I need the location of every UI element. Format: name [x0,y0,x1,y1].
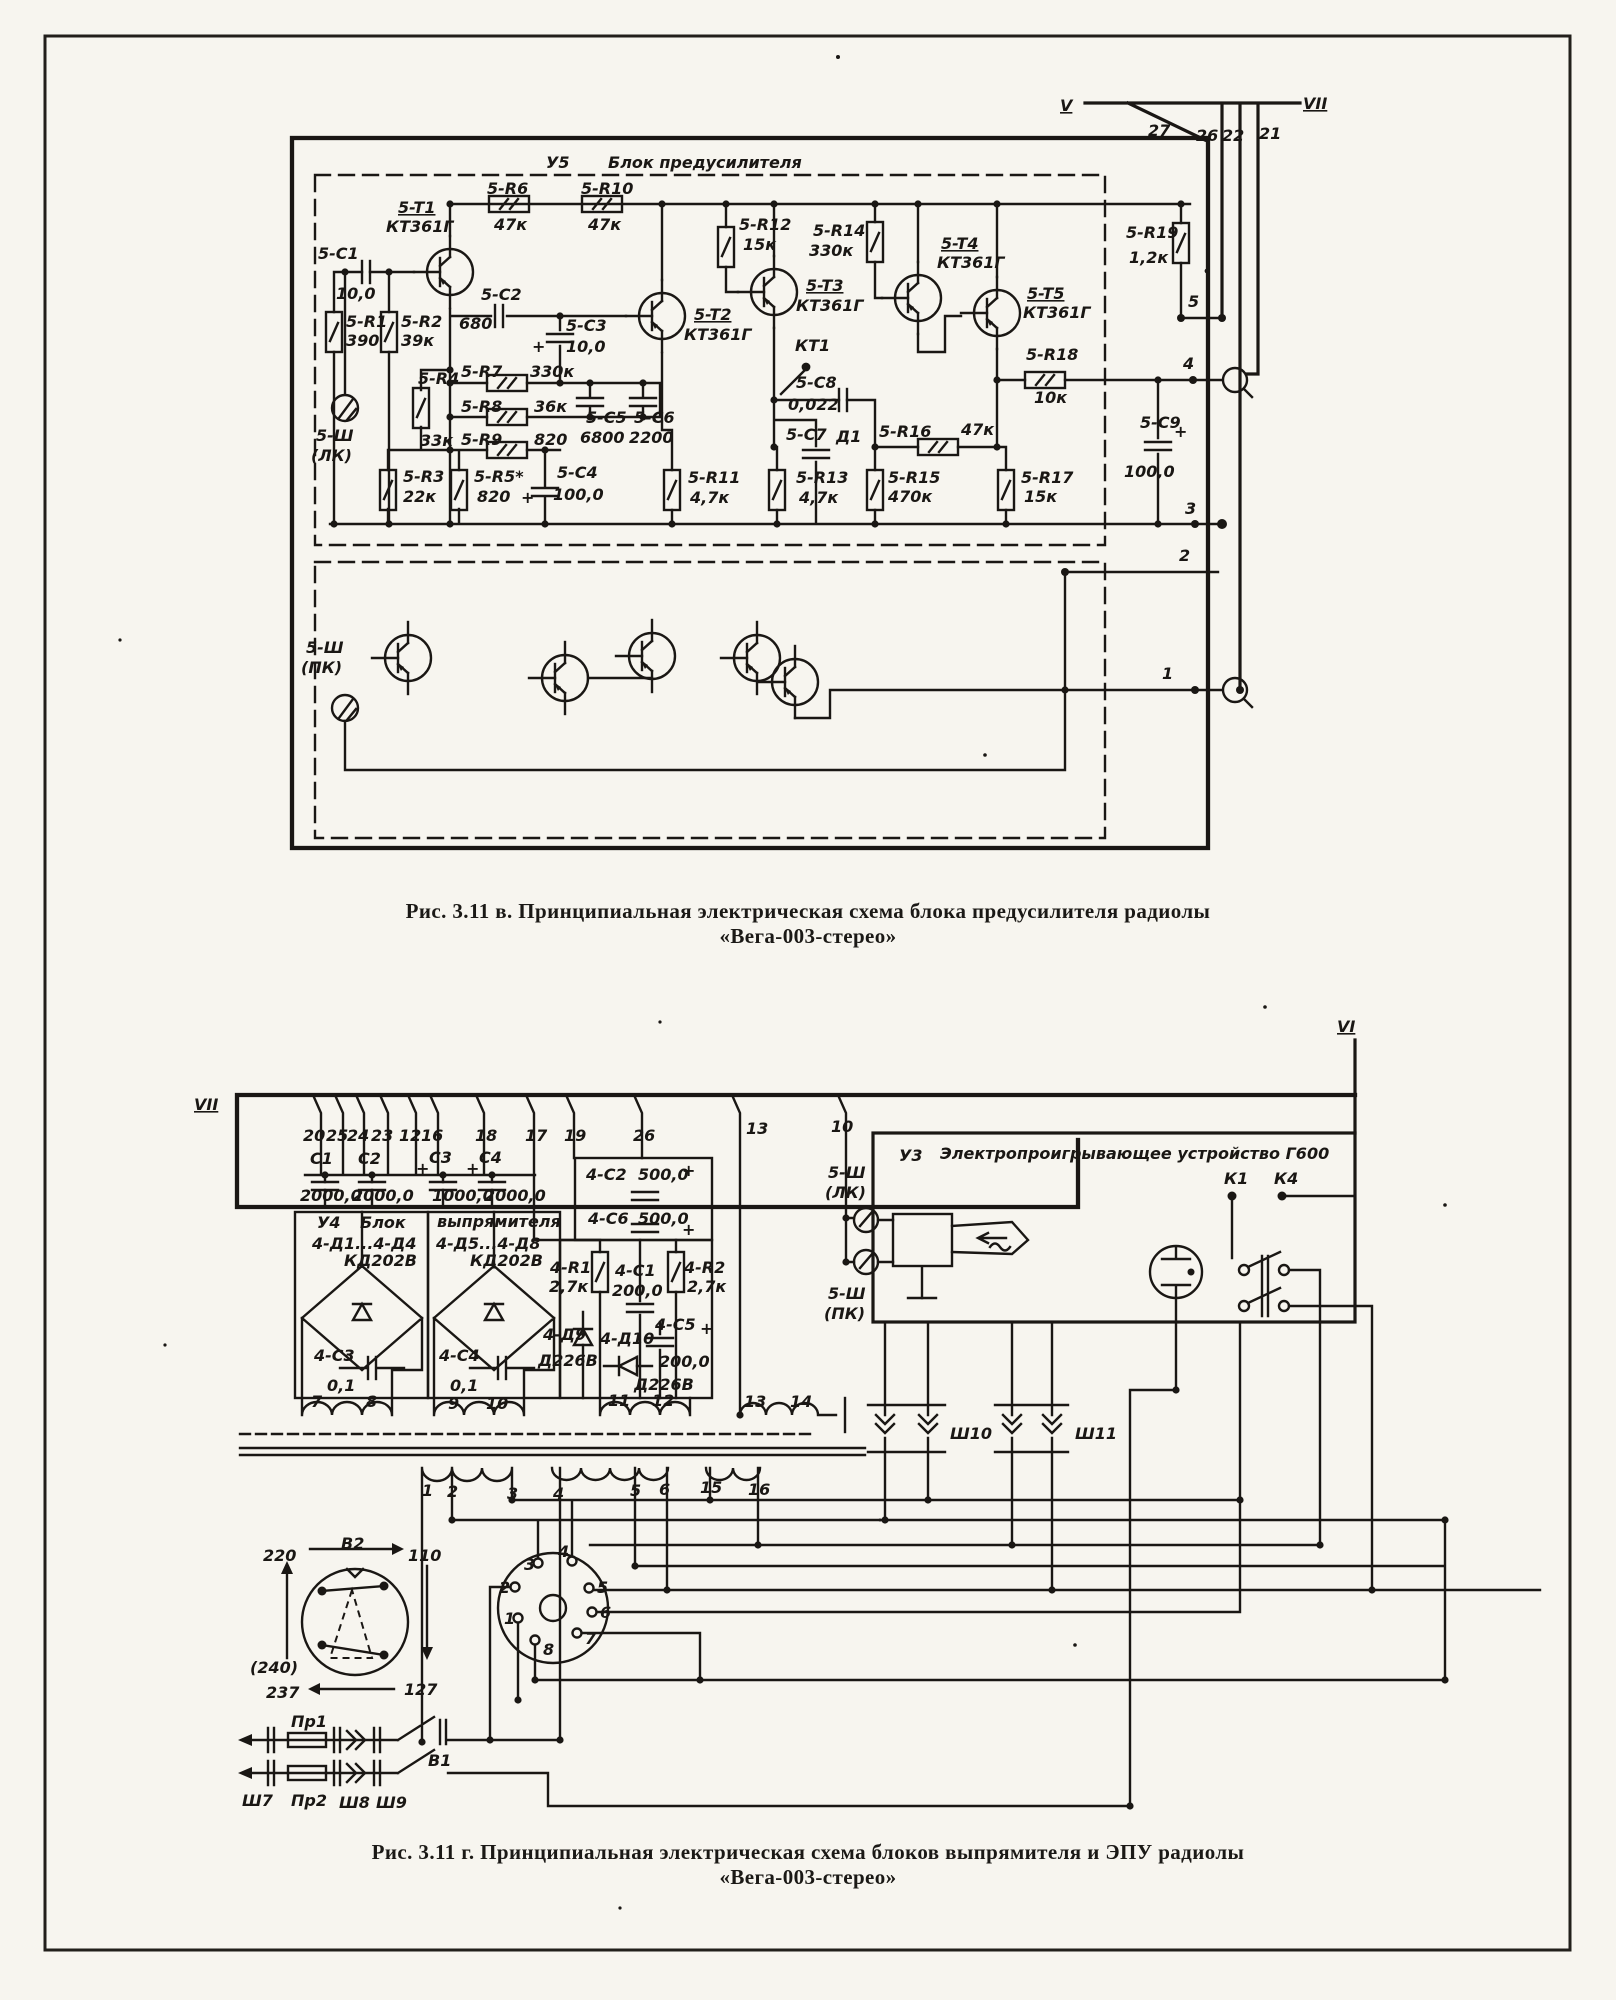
schematic-label: 15к [743,235,777,254]
schematic-label: 2,7к [687,1277,727,1296]
schematic-label: С1 [310,1149,333,1168]
schematic-label: 5-R10 [581,179,633,198]
schematic-label: 5-Ш [306,638,344,657]
schematic-label: 16 [421,1126,443,1145]
schematic-label: 5-T5 [1027,284,1064,303]
schematic-label: 17 [525,1126,548,1145]
schematic-label: 5-R17 [1021,468,1074,487]
schematic-label: 5-R11 [688,468,740,487]
schematic-label: 237 [266,1683,300,1702]
schematic-label: 1,2к [1129,248,1169,267]
schematic-label: + [466,1159,479,1178]
figure-caption-g-line2: «Вега-003-стерео» [0,1865,1616,1890]
schematic-label: 820 [477,487,510,506]
schematic-label: 5-R6 [487,179,528,198]
schematic-label: 16 [748,1480,770,1499]
schematic-label: 4-Д10 [599,1329,654,1348]
schematic-label: 2,7к [549,1277,589,1296]
schematic-label: 20 [303,1126,325,1145]
schematic-label: 5-Ш [828,1163,866,1182]
schematic-label: 11 [608,1391,630,1410]
schematic-label: VII [1303,94,1327,113]
schematic-label: 0,1 [450,1376,478,1395]
schematic-label: Электропроигрывающее устройство Г600 [940,1144,1329,1163]
schematic-label: 18 [475,1126,497,1145]
schematic-label: КТ361Г [1023,303,1091,322]
schematic-label: 5-C3 [566,316,607,335]
schematics-canvas: У5Блок предусилителя5-T1КТ361Г5-R647к5-R… [0,0,1616,2000]
schematic-label: 1 [1162,664,1173,683]
schematic-label: 4 [557,1542,569,1561]
schematic-label: 5-R8 [461,397,502,416]
schematic-label: С2 [358,1149,381,1168]
schematic-label: У5 [546,153,569,172]
schematic-label: 5-R1 [346,312,387,331]
schematic-label: 110 [408,1546,441,1565]
figure-caption-v-line1: Рис. 3.11 в. Принципиальная электрическа… [0,899,1616,924]
schematic-label: 23 [371,1126,393,1145]
schematic-label: 2 [1179,546,1190,565]
schematic-label: VI [1337,1017,1355,1036]
schematic-label: 12 [399,1126,421,1145]
schematic-label: КД202В [344,1251,417,1270]
schematic-label: 7 [585,1629,597,1648]
schematic-label: 5-R3 [403,467,444,486]
schematic-label: 22к [403,487,437,506]
schematic-label: 5-C4 [557,463,598,482]
schematic-label: 220 [263,1546,296,1565]
scan-speck [118,55,1446,1910]
schematic-label: 5-Ш [828,1284,866,1303]
schematic-label: 3 [524,1555,535,1574]
schematic-label: 200,0 [659,1352,710,1371]
schematic-label: (ЛК) [311,446,352,465]
schematic-label: 4-R2 [683,1258,725,1277]
schematic-label: К4 [1274,1169,1298,1188]
schematic-label: 330к [809,241,854,260]
schematic-label: 390 [346,331,379,350]
schematic-label: 0,1 [327,1376,355,1395]
schematic-label: 5-R5* [474,467,524,486]
schematic-label: 5 [630,1481,641,1500]
schematic-label: 470к [887,487,933,506]
schematic-label: VII [194,1095,218,1114]
schematic-label: 5-T3 [806,276,843,295]
schematic-label: В1 [428,1751,451,1770]
schematic-label: 10,0 [566,337,605,356]
schematic-label: 4 [552,1484,564,1503]
schematic-label: 4-C3 [313,1346,355,1365]
schematic-label: 47к [587,215,622,234]
schematic-label: Ш9 [376,1793,407,1812]
schematic-label: 0,022 [788,395,839,414]
schematic-label: С4 [479,1148,502,1167]
schematic-label: 12 [652,1391,674,1410]
schematic-label: + [416,1159,429,1178]
figure-caption-v-line2: «Вега-003-стерео» [0,924,1616,949]
schematic-label: 5-R13 [796,468,848,487]
schematic-label: 4-C4 [438,1346,480,1365]
schematic-label: 10 [486,1394,508,1413]
schematic-label: + [682,1161,695,1180]
schematic-label: 100,0 [553,485,604,504]
schematic-label: 5-C8 [796,373,837,392]
schematic-label: 33к [420,431,454,450]
schematic-label: КД202В [470,1251,543,1270]
schematic-label: 24 [347,1126,369,1145]
schematic-label: 3 [507,1484,518,1503]
schematic-label: У3 [899,1146,922,1165]
schematic-label: 4-С5 [654,1315,696,1334]
schematic-label: 5-C2 [481,285,522,304]
schematic-label: 330к [530,362,575,381]
schematic-label: 2 [447,1482,458,1501]
schematic-label: Д1 [835,427,861,446]
schematic-label: 5-Ш [316,426,354,445]
schematic-label: 6 [600,1603,611,1622]
schematic-label: 5-T2 [694,305,731,324]
rectifier-epu-schematic: VIIVI202524231216181719261310С1С2С3С4++2… [194,1017,1540,1812]
schematic-label: 5-C6 [634,408,675,427]
schematic-label: 2000,0 [484,1186,546,1205]
schematic-label: 5-T4 [941,234,978,253]
schematic-label: 7 [311,1392,323,1411]
schematic-label: 5-C1 [318,244,359,263]
schematic-label: 2200 [629,428,674,447]
schematic-label: 36к [534,397,568,416]
schematic-label: 13 [744,1392,766,1411]
schematic-label: 26 [1196,126,1218,145]
schematic-label: 13 [746,1119,768,1138]
schematic-label: 8 [366,1392,377,1411]
figure-caption-g-line1: Рис. 3.11 г. Принципиальная электрическа… [0,1840,1616,1865]
schematic-label: 15к [1024,487,1058,506]
schematic-label: 21 [1259,124,1281,143]
schematic-label: КТ361Г [796,296,864,315]
schematic-label: 27 [1148,121,1171,140]
schematic-label: 5-R7 [461,362,503,381]
schematic-label: 5-R12 [739,215,791,234]
schematic-label: 5-T1 [398,198,435,217]
schematic-label: 10к [1034,388,1068,407]
schematic-label: 14 [790,1392,812,1411]
schematic-label: 820 [534,430,567,449]
schematic-label: КТ361Г [937,253,1005,272]
schematic-label: Ш11 [1075,1424,1117,1443]
schematic-label: V [1060,96,1074,115]
schematic-label: + [700,1319,713,1338]
schematic-label: 9 [448,1394,459,1413]
schematic-label: 26 [633,1126,655,1145]
schematic-label: 10 [831,1117,853,1136]
schematic-label: У4 [317,1213,340,1232]
schematic-label: С3 [429,1148,452,1167]
schematic-label: 2 [499,1578,510,1597]
schematic-label: КТ1 [795,336,830,355]
schematic-label: 1 [422,1481,433,1500]
schematic-label: 8 [543,1640,554,1659]
schematic-label: выпрямителя [437,1212,561,1231]
schematic-label: 680 [459,314,492,333]
schematic-label: КТ361Г [684,325,752,344]
schematic-label: + [532,337,545,356]
schematic-label: Блок предусилителя [608,153,802,172]
schematic-label: + [521,488,534,507]
schematic-label: 4-C2 [585,1165,627,1184]
schematic-label: 3 [1185,499,1196,518]
schematic-label: К1 [1224,1169,1248,1188]
schematic-label: 2000,0 [352,1186,414,1205]
schematic-label: 5-R18 [1026,345,1078,364]
schematic-label: Блок [360,1213,407,1232]
schematic-label: (ПК) [824,1304,865,1323]
schematic-label: (240) [250,1658,298,1677]
schematic-label: 5-R14 [813,221,865,240]
schematic-label: + [1174,422,1187,441]
schematic-label: 22 [1222,126,1244,145]
schematic-label: 4 [1182,354,1194,373]
schematic-label: Ш8 [339,1793,370,1812]
schematic-label: 4-C1 [614,1261,656,1280]
schematic-label: 127 [404,1680,438,1699]
schematic-label: Пр1 [291,1712,327,1731]
schematic-label: 200,0 [612,1281,663,1300]
schematic-label: 4-R1 [549,1258,591,1277]
schematic-label: 5-R2 [401,312,442,331]
schematic-label: 5 [1188,292,1199,311]
schematic-label: (ЛК) [825,1183,866,1202]
schematic-label: 4-С6 [587,1209,629,1228]
schematic-label: 4-Д9 [542,1325,586,1344]
schematic-label: 1 [504,1609,515,1628]
schematic-label: Ш10 [950,1424,992,1443]
preamp-schematic: У5Блок предусилителя5-T1КТ361Г5-R647к5-R… [292,94,1327,848]
schematic-label: 25 [326,1126,348,1145]
preamp-labels: У5Блок предусилителя5-T1КТ361Г5-R647к5-R… [301,94,1327,683]
schematic-label: 15 [700,1478,722,1497]
schematic-label: 47к [493,215,528,234]
schematic-label: 5-R16 [879,422,931,441]
schematic-label: В2 [341,1534,364,1553]
schematic-label: 6800 [580,428,625,447]
schematic-label: Д226В [537,1351,598,1370]
schematic-label: 5-R15 [888,468,940,487]
schematic-label: (ПК) [301,658,342,677]
schematic-label: 100,0 [1124,462,1175,481]
schematic-label: 6 [659,1480,670,1499]
schematic-label: 39к [401,331,435,350]
schematic-label: 5-R4 [418,369,459,388]
schematic-label: 4,7к [798,488,839,507]
rectifier-epu-labels: VIIVI202524231216181719261310С1С2С3С4++2… [194,1017,1355,1812]
schematic-label: 4,7к [689,488,730,507]
schematic-label: 19 [564,1126,586,1145]
scanned-manual-page: У5Блок предусилителя5-T1КТ361Г5-R647к5-R… [0,0,1616,2000]
schematic-label: 5-R19 [1126,223,1178,242]
schematic-label: 5-C5 [586,408,627,427]
schematic-label: 5-C7 [786,425,828,444]
schematic-label: 5-R9 [461,430,502,449]
schematic-label: КТ361Г [386,217,454,236]
schematic-label: 47к [960,420,995,439]
schematic-label: Пр2 [291,1791,327,1810]
schematic-label: 5 [597,1578,608,1597]
schematic-label: 10,0 [336,284,375,303]
schematic-label: Ш7 [242,1791,274,1810]
schematic-label: + [682,1220,695,1239]
